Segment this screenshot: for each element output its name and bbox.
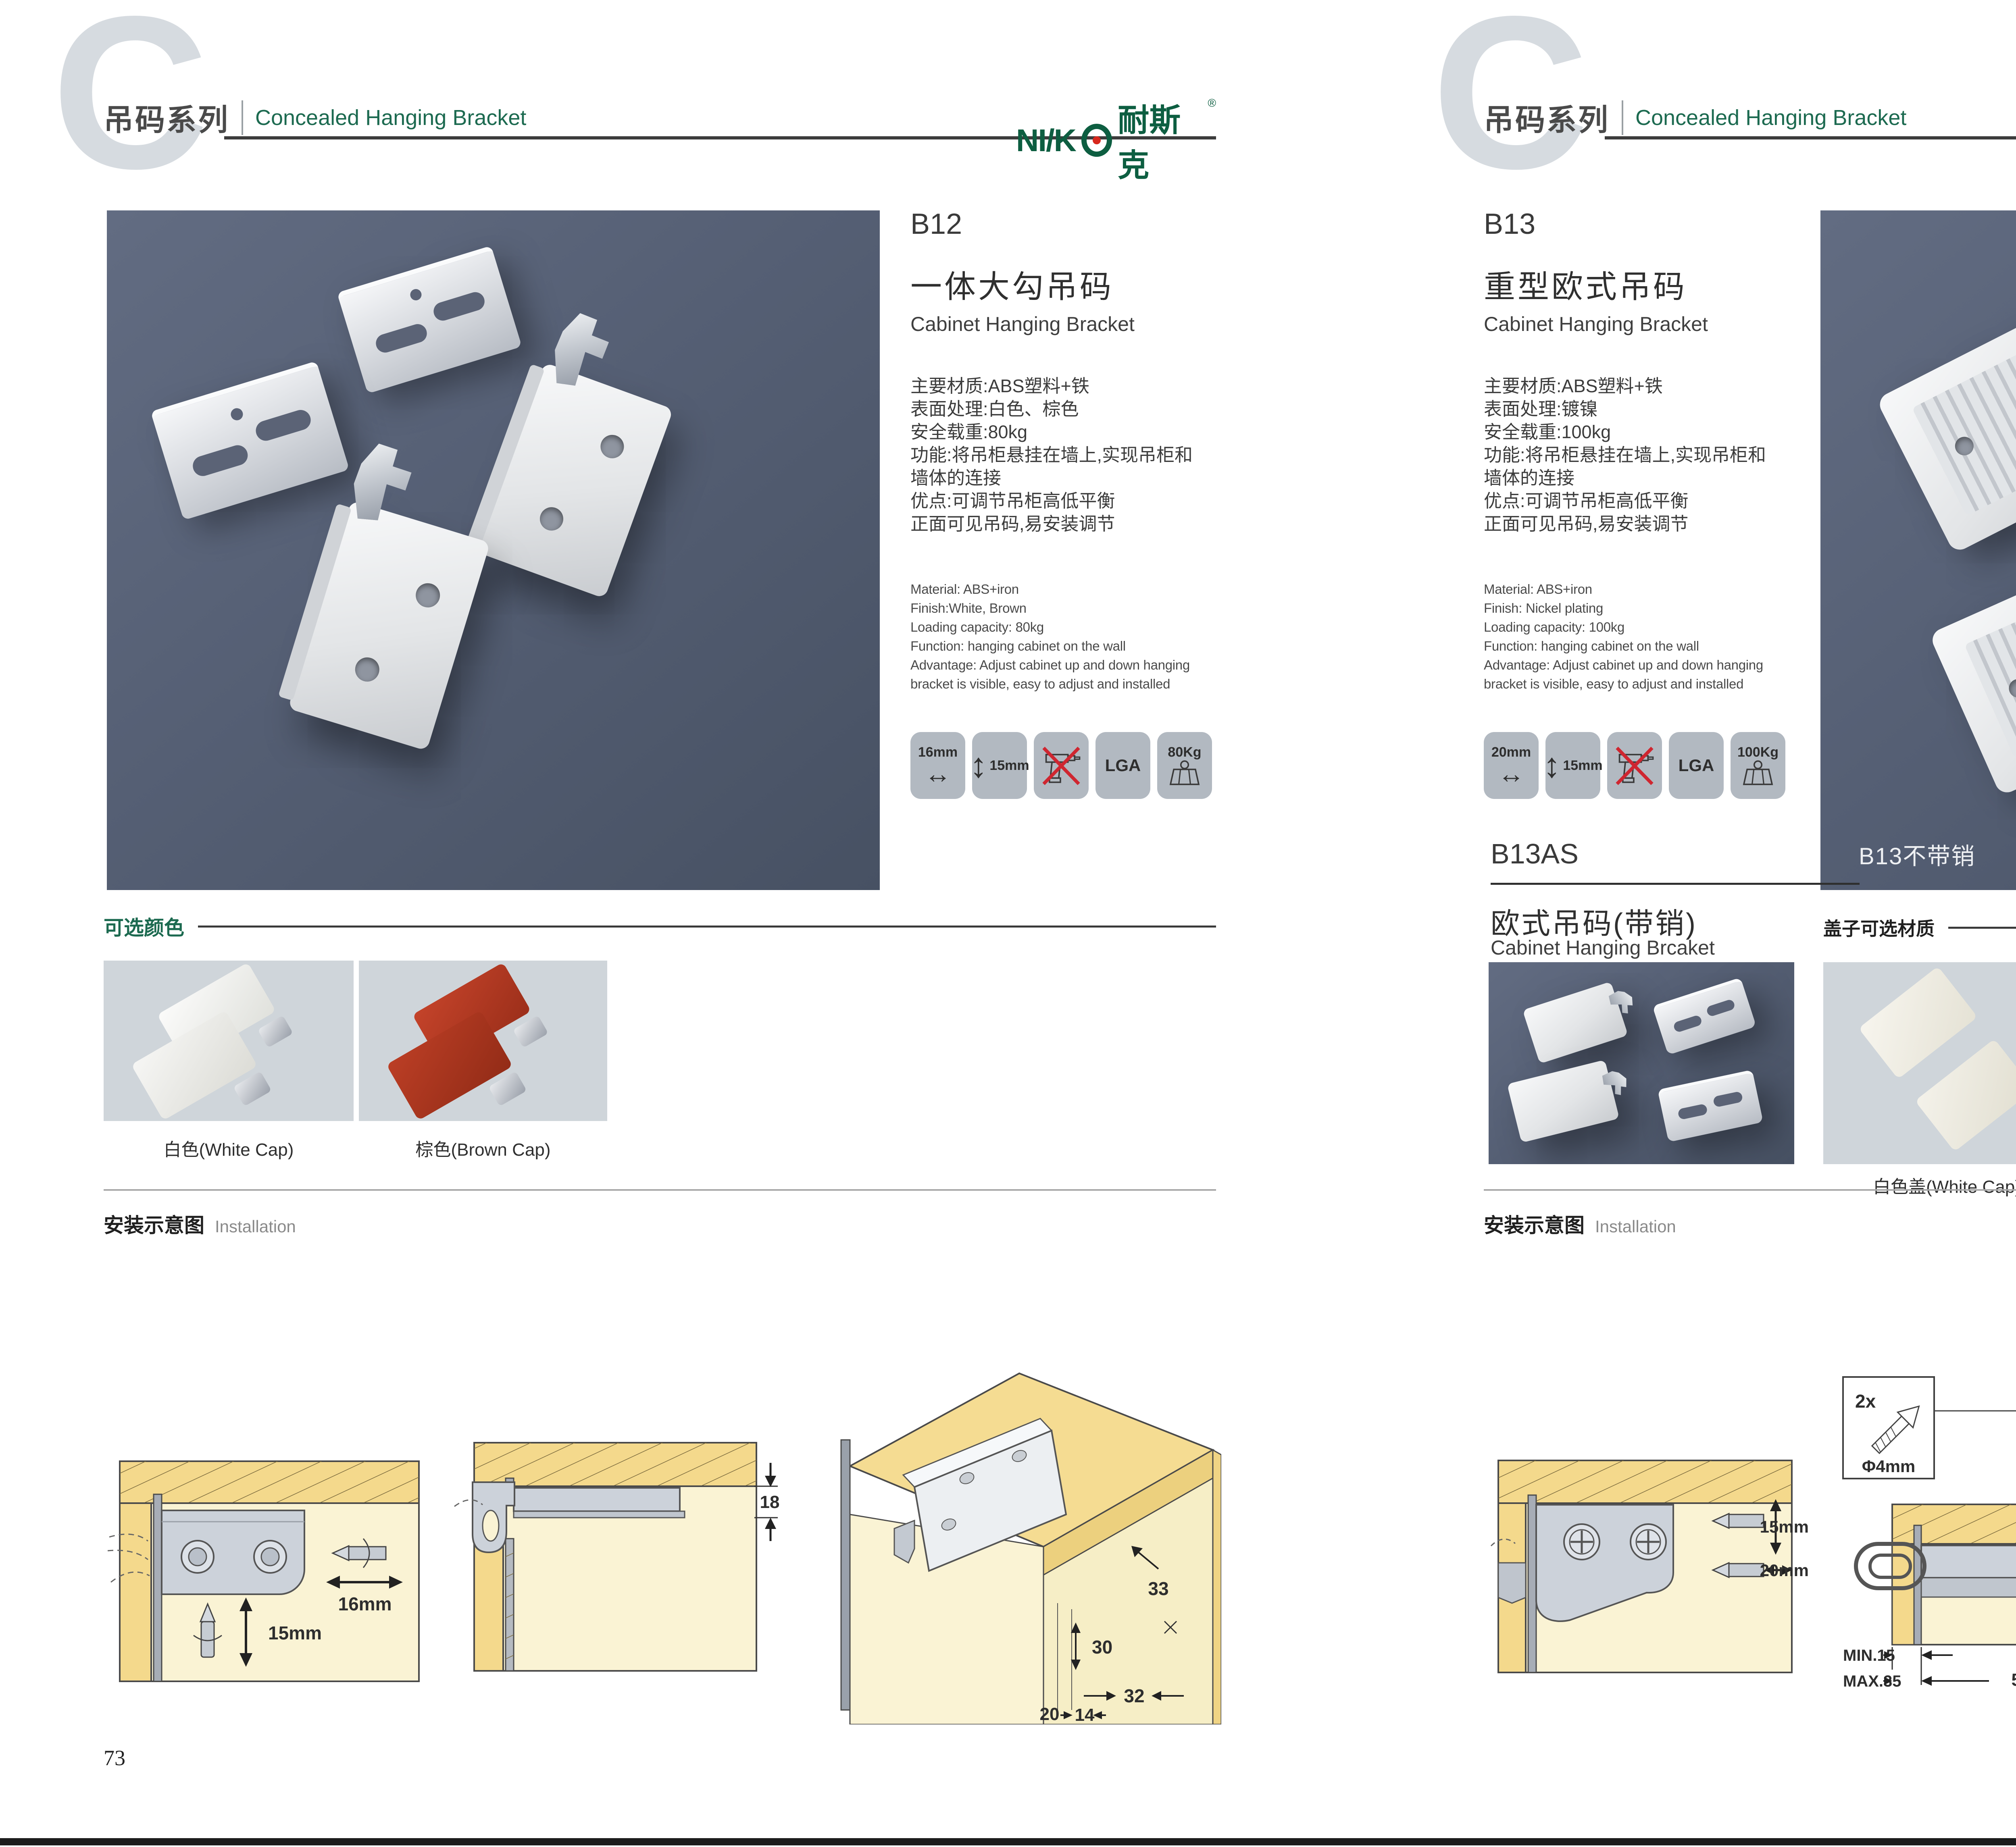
spec-line: 优点:可调节吊柜高低平衡 xyxy=(1484,489,1798,512)
product-info-b13: B13 重型欧式吊码 Cabinet Hanging Bracket 主要材质:… xyxy=(1484,208,1798,799)
installation-title-en: Installation xyxy=(1595,1217,1676,1236)
weight-icon xyxy=(1741,760,1775,787)
rail-slot xyxy=(374,322,429,355)
hanging-bracket xyxy=(1507,1060,1620,1143)
dimension-label: 15mm xyxy=(1760,1517,1809,1536)
installation-diagram-2: 18 xyxy=(452,1418,780,1693)
installation-title-en: Installation xyxy=(215,1217,296,1236)
wall-rail xyxy=(337,245,522,394)
color-swatch-brown xyxy=(359,961,607,1121)
hanging-bracket xyxy=(476,362,674,599)
specs-cn: 主要材质:ABS塑料+铁 表面处理:镀镍 安全载重:100kg 功能:将吊柜悬挂… xyxy=(1484,374,1798,535)
wall-rail xyxy=(1658,1070,1763,1142)
series-title-cn: 吊码系列 xyxy=(1484,96,1610,139)
installation-title-cn: 安装示意图 xyxy=(104,1209,204,1238)
dimension-label: 2x xyxy=(1855,1391,1876,1412)
rail-hole xyxy=(229,407,244,422)
product-title-cn: 重型欧式吊码 xyxy=(1484,262,1798,307)
rail-slot xyxy=(1706,998,1736,1017)
product-info-b12: B12 一体大勾吊码 Cabinet Hanging Bracket 主要材质:… xyxy=(910,208,1225,799)
dimension-label: 30 xyxy=(1092,1637,1112,1658)
page-number: 73 xyxy=(104,1745,125,1770)
series-header: 吊码系列 Concealed Hanging Bracket xyxy=(104,96,526,139)
specs-en: Material: ABS+iron Finish:White, Brown L… xyxy=(910,580,1225,693)
spec-line: 正面可见吊码,易安装调节 xyxy=(1484,512,1798,535)
horizontal-arrow-icon: ↔ xyxy=(1498,760,1524,787)
rail-slot xyxy=(431,290,487,323)
rail-slot xyxy=(1713,1091,1743,1107)
spec-line: 主要材质:ABS塑料+铁 xyxy=(1484,374,1798,397)
wall-rail xyxy=(1652,978,1756,1055)
bracket-hole xyxy=(537,504,566,534)
hook-shape xyxy=(258,1015,293,1048)
hook-shape xyxy=(513,1015,548,1048)
colors-section-header: 可选颜色 xyxy=(104,912,1216,941)
load-value: 80Kg xyxy=(1168,745,1201,760)
covers-section-title: 盖子可选材质 xyxy=(1823,914,1935,941)
product-photo-b12 xyxy=(107,210,880,890)
sub-product-title-en: Cabinet Hanging Brcaket xyxy=(1491,936,1715,959)
section-rule xyxy=(198,926,1216,928)
spec-line: Advantage: Adjust cabinet up and down ha… xyxy=(1484,655,1798,674)
hanging-bracket xyxy=(1929,528,2016,796)
no-drill-tile xyxy=(1607,732,1662,799)
nisko-logo-cn: 耐斯克 xyxy=(1118,95,1202,185)
dimension-label: 16mm xyxy=(338,1593,392,1614)
load-value: 100Kg xyxy=(1737,745,1779,760)
rail-slot xyxy=(190,443,250,478)
rail-slot xyxy=(253,408,313,443)
spec-line: 正面可见吊码,易安装调节 xyxy=(910,512,1225,535)
vertical-arrow-icon: ↕ xyxy=(970,748,987,783)
cover-swatch-white xyxy=(1823,962,2016,1164)
spec-line: Function: hanging cabinet on the wall xyxy=(1484,636,1798,655)
spec-line: Finish: Nickel plating xyxy=(1484,599,1798,618)
spec-line: 功能:将吊柜悬挂在墙上,实现吊柜和 xyxy=(910,443,1225,466)
sub-product-rule xyxy=(1491,883,1860,885)
sub-product-code: B13AS xyxy=(1491,838,1579,870)
dimension-label: Φ4mm xyxy=(1862,1457,1916,1476)
specs-en: Material: ABS+iron Finish: Nickel platin… xyxy=(1484,580,1798,693)
spec-line: 主要材质:ABS塑料+铁 xyxy=(910,374,1225,397)
spec-line: 安全载重:100kg xyxy=(1484,420,1798,443)
dimension-label: 33 xyxy=(1148,1578,1168,1599)
dimension-label: 20 xyxy=(1040,1704,1060,1724)
bracket-flange xyxy=(278,503,352,701)
series-divider xyxy=(1622,100,1623,135)
white-cap-shape xyxy=(1858,966,1978,1079)
spec-line: Loading capacity: 80kg xyxy=(910,618,1225,636)
spec-line: 优点:可调节吊柜高低平衡 xyxy=(910,489,1225,512)
series-title-cn: 吊码系列 xyxy=(104,96,229,139)
bracket-hook-icon xyxy=(1602,1069,1629,1097)
installation-title-cn: 安装示意图 xyxy=(1484,1209,1585,1238)
installation-header: 安装示意图 Installation xyxy=(104,1209,296,1238)
nisko-logo-o-icon xyxy=(1081,124,1112,157)
section-rule xyxy=(1948,927,2016,929)
vertical-arrow-icon: ↕ xyxy=(1543,748,1560,783)
white-cap-shape xyxy=(1915,1039,2016,1152)
product-title-cn: 一体大勾吊码 xyxy=(910,262,1225,307)
product-code: B12 xyxy=(910,208,1225,241)
swatch-caption: 白色盖(White Cap) xyxy=(1823,1172,2016,1198)
colors-section-title: 可选颜色 xyxy=(104,912,184,941)
bracket-hole xyxy=(597,432,627,462)
height-range-tile: ↕ 15mm xyxy=(1545,732,1600,799)
lga-label: LGA xyxy=(1679,756,1714,775)
hanging-bracket xyxy=(1876,282,2016,554)
spec-line: 功能:将吊柜悬挂在墙上,实现吊柜和 xyxy=(1484,443,1798,466)
wall-rail xyxy=(150,361,350,520)
series-title-en: Concealed Hanging Bracket xyxy=(1635,105,1906,130)
bracket-hole xyxy=(352,654,382,684)
rail-hole xyxy=(409,288,423,302)
installation-header: 安装示意图 Installation xyxy=(1484,1209,1676,1238)
installation-diagram-2: 2x Φ4mm 18 MIN.15 MAX.35 xyxy=(1832,1362,2016,1690)
rail-slot xyxy=(1677,1103,1708,1120)
specs-cn: 主要材质:ABS塑料+铁 表面处理:白色、棕色 安全载重:80kg 功能:将吊柜… xyxy=(910,374,1225,535)
spec-line: Advantage: Adjust cabinet up and down ha… xyxy=(910,655,1225,674)
covers-section-header: 盖子可选材质 xyxy=(1823,914,2016,941)
spec-line: bracket is visible, easy to adjust and i… xyxy=(1484,674,1798,693)
photo-label: B13不带销 xyxy=(1859,837,1975,871)
dimension-label: 14 xyxy=(1075,1705,1095,1724)
no-drill-tile xyxy=(1034,732,1089,799)
spec-line: Function: hanging cabinet on the wall xyxy=(910,636,1225,655)
color-swatch-white xyxy=(104,961,354,1121)
series-divider xyxy=(242,100,243,135)
bracket-hook-icon xyxy=(351,442,414,523)
spec-line: 表面处理:镀镍 xyxy=(1484,397,1798,420)
page-bottom-edge xyxy=(0,1838,2016,1845)
bracket-hook-icon xyxy=(550,310,612,389)
load-capacity-tile: 100Kg xyxy=(1731,732,1785,799)
bracket-ribs xyxy=(1964,564,2016,759)
product-photo-b13: B13不带销 xyxy=(1820,210,2016,890)
rail-slot xyxy=(1672,1014,1703,1033)
height-value: 15mm xyxy=(989,758,1029,774)
installation-diagram-3: 33 30 32 20 14 xyxy=(793,1345,1221,1724)
bracket-hook-icon xyxy=(1608,988,1635,1017)
swatch-caption: 白色(White Cap) xyxy=(104,1135,354,1161)
lga-tile: LGA xyxy=(1669,732,1724,799)
horizontal-arrow-icon: ↔ xyxy=(925,760,951,787)
dimension-label: 32 xyxy=(1124,1685,1144,1706)
dimension-label: 58 xyxy=(2012,1670,2016,1690)
dimension-label: 20mm xyxy=(1760,1561,1809,1580)
width-range-tile: 16mm ↔ xyxy=(910,732,965,799)
dimension-label: 15mm xyxy=(268,1622,322,1643)
weight-icon xyxy=(1168,760,1202,787)
spec-line: bracket is visible, easy to adjust and i… xyxy=(910,674,1225,693)
product-code: B13 xyxy=(1484,208,1798,241)
hanging-bracket xyxy=(288,500,490,751)
nisko-logo-latin: NI/K xyxy=(1016,122,1076,159)
no-drill-icon xyxy=(1614,743,1656,788)
width-range-tile: 20mm ↔ xyxy=(1484,732,1539,799)
nisko-logo: NI/K 耐斯克 ® xyxy=(1016,95,1216,185)
series-title-en: Concealed Hanging Bracket xyxy=(255,105,526,130)
spec-line: 表面处理:白色、棕色 xyxy=(910,397,1225,420)
height-value: 15mm xyxy=(1563,758,1602,774)
catalog-spread: C 吊码系列 Concealed Hanging Bracket NI/K 耐斯… xyxy=(0,0,2016,1847)
swatch-caption: 棕色(Brown Cap) xyxy=(359,1135,607,1161)
feature-icons: 20mm ↔ ↕ 15mm LGA xyxy=(1484,732,1798,799)
installation-diagram-1: 16mm 15mm xyxy=(107,1418,431,1693)
feature-icons: 16mm ↔ ↕ 15mm LGA xyxy=(910,732,1225,799)
registered-mark: ® xyxy=(1208,97,1216,110)
logo-red-dot-icon xyxy=(1093,136,1101,144)
width-value: 16mm xyxy=(918,745,958,760)
section-divider xyxy=(1484,1189,2016,1191)
dimension-label: MAX.35 xyxy=(1843,1672,1901,1690)
lga-label: LGA xyxy=(1105,756,1141,775)
spec-line: Material: ABS+iron xyxy=(1484,580,1798,599)
product-photo-b13as xyxy=(1489,962,1794,1164)
height-range-tile: ↕ 15mm xyxy=(972,732,1027,799)
installation-diagram-1: 15mm 20mm xyxy=(1487,1442,1811,1681)
spec-line: 墙体的连接 xyxy=(910,466,1225,489)
lga-tile: LGA xyxy=(1095,732,1150,799)
bracket-flange xyxy=(467,364,545,547)
no-drill-icon xyxy=(1040,743,1082,788)
series-header: 吊码系列 Concealed Hanging Bracket xyxy=(1484,96,1906,139)
spec-line: Material: ABS+iron xyxy=(910,580,1225,599)
width-value: 20mm xyxy=(1491,745,1531,760)
spec-line: 墙体的连接 xyxy=(1484,466,1798,489)
spec-line: Finish:White, Brown xyxy=(910,599,1225,618)
product-title-en: Cabinet Hanging Bracket xyxy=(1484,312,1798,336)
spec-line: 安全载重:80kg xyxy=(910,420,1225,443)
dimension-label: 18 xyxy=(760,1492,780,1512)
load-capacity-tile: 80Kg xyxy=(1157,732,1212,799)
bracket-ribs xyxy=(1912,320,2016,516)
product-title-en: Cabinet Hanging Bracket xyxy=(910,312,1225,336)
section-divider xyxy=(104,1189,1216,1191)
spec-line: Loading capacity: 100kg xyxy=(1484,618,1798,636)
bracket-hole xyxy=(413,580,443,610)
hanging-bracket xyxy=(1522,982,1628,1064)
